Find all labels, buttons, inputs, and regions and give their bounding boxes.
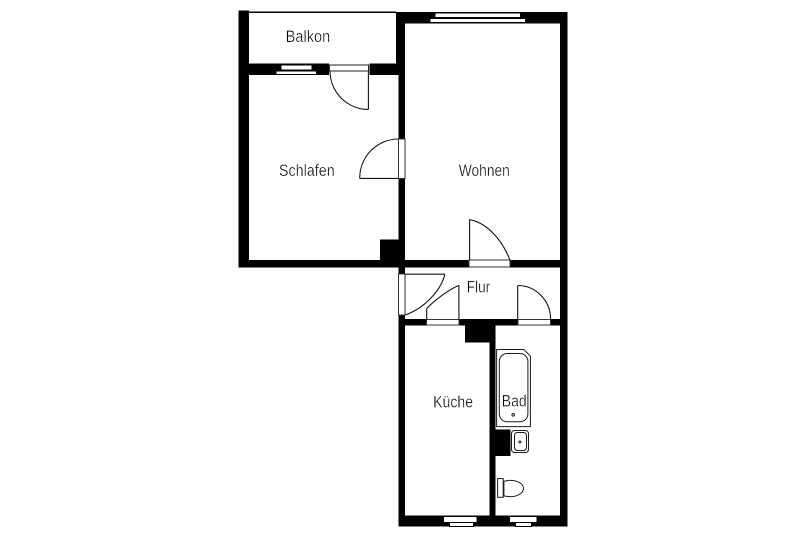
svg-text:Wohnen: Wohnen — [459, 162, 510, 180]
svg-text:Balkon: Balkon — [286, 28, 331, 46]
svg-text:Schlafen: Schlafen — [279, 162, 335, 180]
svg-text:Flur: Flur — [467, 279, 491, 297]
svg-text:Bad: Bad — [502, 393, 527, 411]
svg-text:Küche: Küche — [433, 393, 473, 411]
